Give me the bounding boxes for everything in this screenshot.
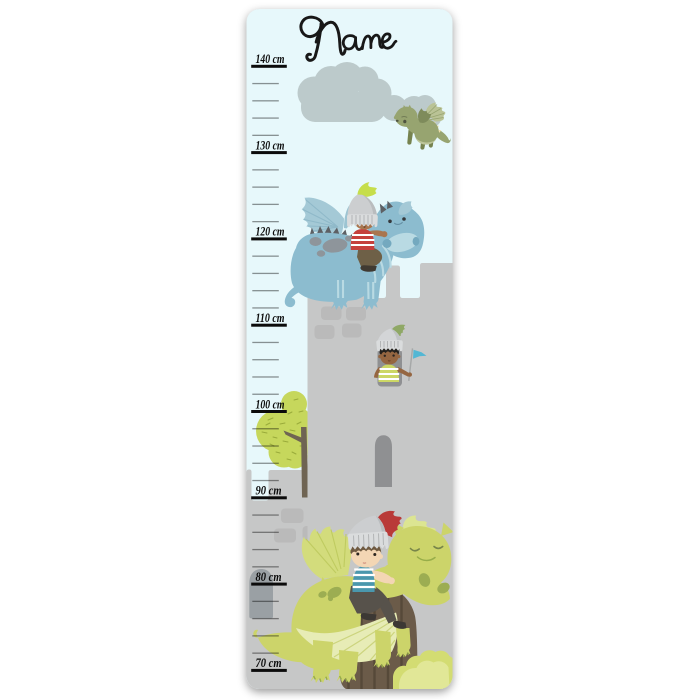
svg-text:80 cm: 80 cm [256,569,282,584]
svg-text:130 cm: 130 cm [256,137,285,152]
svg-text:90 cm: 90 cm [256,483,282,498]
svg-text:70 cm: 70 cm [256,655,282,670]
svg-text:120 cm: 120 cm [256,224,285,239]
svg-text:100 cm: 100 cm [256,396,285,411]
svg-text:110 cm: 110 cm [256,310,285,325]
svg-text:140 cm: 140 cm [256,51,285,66]
